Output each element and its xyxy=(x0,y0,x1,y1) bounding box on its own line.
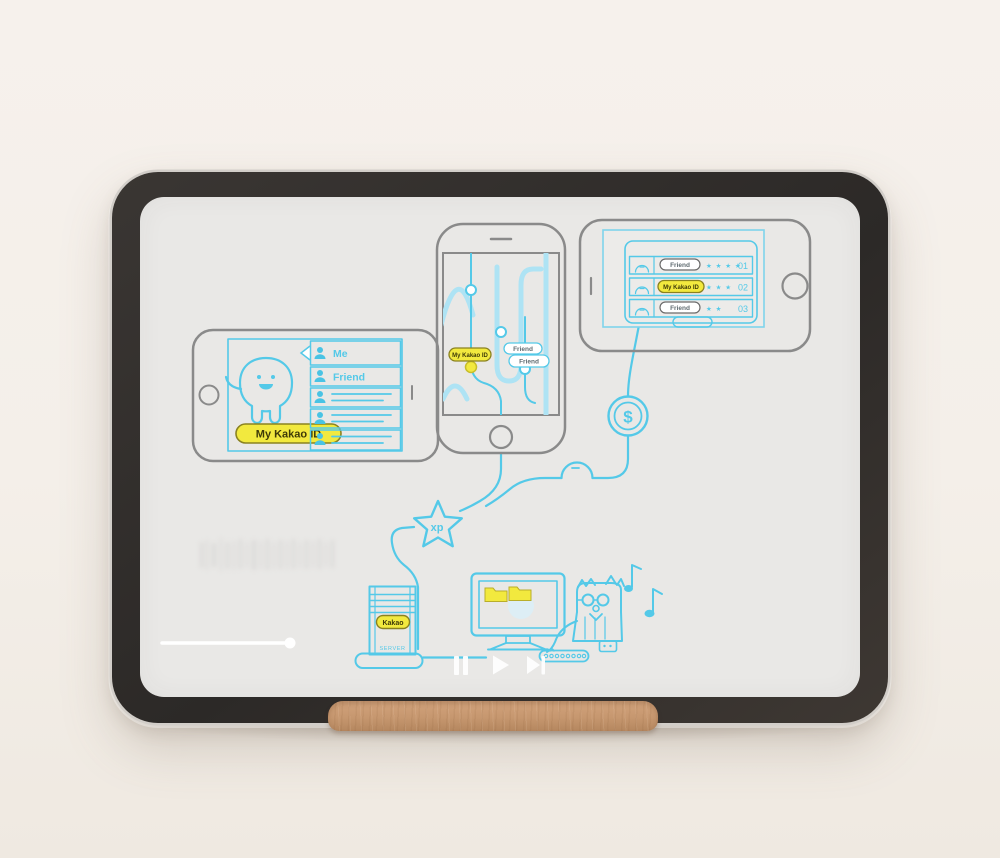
home-button-icon xyxy=(490,426,512,448)
dollar-coin-icon: $ xyxy=(609,397,648,436)
person-icon xyxy=(315,347,326,359)
rank-number: 02 xyxy=(738,283,748,293)
skip-next-button[interactable] xyxy=(527,656,545,675)
dollar-symbol: $ xyxy=(623,408,633,427)
pause-button[interactable] xyxy=(454,656,468,675)
flow-map xyxy=(441,251,546,417)
wooden-stand xyxy=(328,701,658,731)
my-kakao-id-label: My Kakao ID xyxy=(452,353,488,359)
tablet-device: My Kakao ID xyxy=(112,172,888,723)
player-name: Friend xyxy=(670,262,690,269)
server-base xyxy=(356,654,423,669)
folder-icon xyxy=(509,587,531,601)
my-kakao-id-badge: My Kakao ID xyxy=(236,424,341,443)
star-rating: ★ ★ xyxy=(706,305,722,313)
video-frame: My Kakao ID xyxy=(140,197,860,697)
person-icon xyxy=(315,370,326,382)
ghost-character xyxy=(226,358,292,423)
wood-grain xyxy=(328,701,658,731)
home-button-icon xyxy=(783,274,808,299)
xp-label: xp xyxy=(431,522,444,534)
rank-number: 01 xyxy=(738,261,748,271)
right-tablet: Friend ★ ★ ★ ★ 01 My Kakao ID ★ ★ ★ xyxy=(580,220,810,351)
flow-node xyxy=(496,327,506,337)
star-rating: ★ ★ ★ xyxy=(706,284,732,292)
peeking-ghost-icon xyxy=(562,463,593,479)
music-note-icon xyxy=(625,565,642,592)
friend-label: Friend xyxy=(519,359,539,366)
contact-label-friend: Friend xyxy=(333,372,365,384)
friend-badge: Friend xyxy=(509,355,549,367)
scene: My Kakao ID xyxy=(0,0,1000,858)
left-phone: My Kakao ID xyxy=(193,330,438,461)
playhead[interactable] xyxy=(285,638,296,649)
kerchief-icon xyxy=(590,614,602,620)
kakao-label: Kakao xyxy=(382,620,403,627)
middle-phone: My Kakao ID Friend Friend xyxy=(437,224,565,453)
flow-node-me xyxy=(466,362,477,373)
home-button-icon xyxy=(200,386,219,405)
server-label: SERVER xyxy=(379,646,405,652)
contact-row xyxy=(311,388,401,407)
server-tower: Kakao SERVER xyxy=(356,587,423,669)
play-button[interactable] xyxy=(493,656,509,675)
player-name: My Kakao ID xyxy=(663,285,699,291)
flow-node xyxy=(466,285,476,295)
person-icon xyxy=(315,391,326,403)
folder-icon xyxy=(485,588,507,602)
placeholder-lines xyxy=(332,394,391,443)
server-vents-icon xyxy=(370,595,415,613)
rank-number: 03 xyxy=(738,304,748,314)
kakao-badge: Kakao xyxy=(377,616,410,629)
my-kakao-id-badge-small: My Kakao ID xyxy=(449,348,491,361)
speech-tail-icon xyxy=(301,346,310,360)
nose-icon xyxy=(593,606,599,612)
friend-label: Friend xyxy=(513,346,533,353)
cape xyxy=(573,612,622,641)
tablet-screen[interactable]: My Kakao ID xyxy=(140,197,860,697)
person-icon xyxy=(315,412,326,424)
ears-icon xyxy=(606,576,624,586)
blurred-text xyxy=(200,538,334,571)
contact-row xyxy=(311,341,401,365)
desktop-monitor xyxy=(472,574,565,650)
xp-star-icon: xp xyxy=(414,501,462,546)
star-rating: ★ ★ ★ ★ xyxy=(706,262,742,270)
glasses-icon xyxy=(578,595,609,606)
player-name: Friend xyxy=(670,305,690,312)
friend-badge: Friend xyxy=(504,343,542,354)
keyboard-keys xyxy=(544,654,585,657)
contact-label-me: Me xyxy=(333,348,348,360)
music-note-icon xyxy=(645,589,662,617)
video-player-overlay xyxy=(162,638,830,676)
